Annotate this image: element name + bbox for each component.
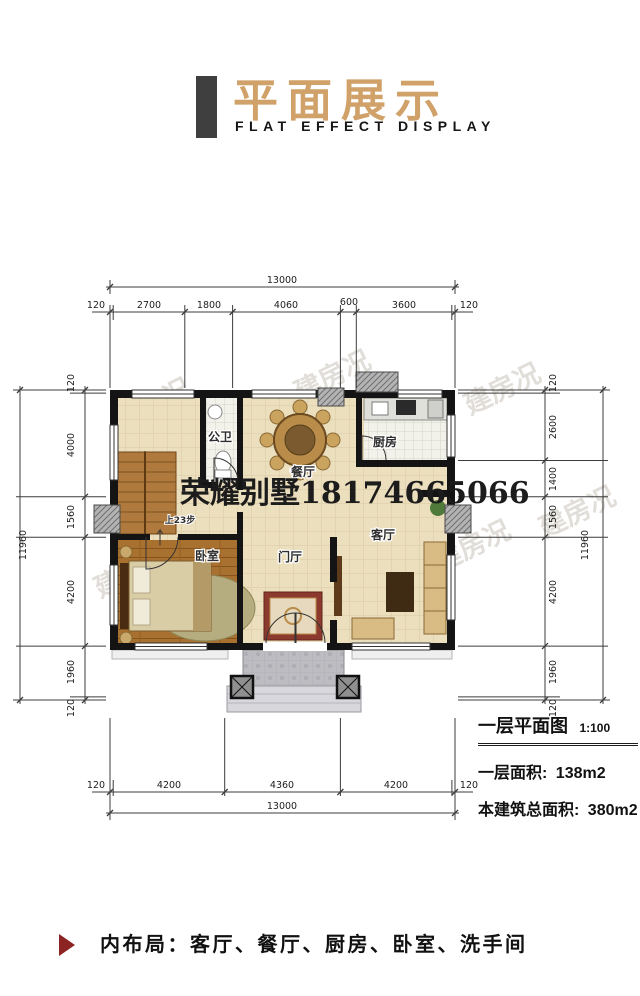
plan-title: 一层平面图 bbox=[478, 716, 568, 736]
dim-label: 1560 bbox=[66, 505, 77, 529]
footer-layout-text: 内布局：客厅、餐厅、厨房、卧室、洗手间 bbox=[100, 928, 528, 957]
plan-info-title-row: 一层平面图 1:100 bbox=[478, 712, 638, 746]
dim-label: 1960 bbox=[548, 660, 559, 684]
dim-label: 120 bbox=[66, 699, 77, 717]
floor-plan-area: 建房况 建房况 建房况 建房况 建房况 建房况 建房况 bbox=[0, 0, 640, 991]
dim-label: 1960 bbox=[66, 660, 77, 684]
total-area-label: 本建筑总面积: bbox=[478, 802, 579, 819]
total-area-row: 本建筑总面积: 380m2 bbox=[478, 796, 638, 820]
dim-left: 11960 120 4000 1560 4200 1960 120 bbox=[18, 374, 77, 717]
dim-top: 13000 120 2700 1800 4060 600 3600 120 bbox=[87, 275, 478, 311]
dim-label: 1560 bbox=[548, 505, 559, 529]
dim-label: 120 bbox=[548, 374, 559, 392]
dim-label: 4060 bbox=[274, 300, 298, 311]
dim-label: 4360 bbox=[270, 780, 294, 791]
dim-bottom-total: 13000 bbox=[267, 801, 297, 812]
dim-label: 4200 bbox=[66, 580, 77, 604]
room-label-kitchen: 厨房 bbox=[373, 434, 397, 449]
kitchen-counter bbox=[364, 398, 447, 420]
dim-label: 120 bbox=[87, 300, 105, 311]
floor-plan-drawing: 建房况 建房况 建房况 建房况 建房况 建房况 建房况 bbox=[0, 0, 640, 991]
floor-area-label: 一层面积: bbox=[478, 765, 547, 782]
stairs bbox=[114, 452, 176, 545]
dim-right-total: 11960 bbox=[580, 530, 591, 560]
plan-info-block: 一层平面图 1:100 一层面积: 138m2 本建筑总面积: 380m2 bbox=[478, 712, 638, 820]
dim-label: 2700 bbox=[137, 300, 161, 311]
dim-label: 120 bbox=[87, 780, 105, 791]
room-label-bathroom: 公卫 bbox=[208, 430, 232, 444]
triangle-marker-icon bbox=[59, 934, 75, 956]
dim-label: 120 bbox=[460, 300, 478, 311]
dim-label: 600 bbox=[340, 297, 358, 308]
dim-right: 11960 120 2600 1400 1560 4200 1960 120 bbox=[548, 374, 591, 717]
dim-label: 4200 bbox=[384, 780, 408, 791]
dim-label: 120 bbox=[66, 374, 77, 392]
dim-label: 1800 bbox=[197, 300, 221, 311]
dim-label: 3600 bbox=[392, 300, 416, 311]
floor-area-row: 一层面积: 138m2 bbox=[478, 759, 638, 783]
room-label-foyer: 门厅 bbox=[278, 549, 302, 564]
center-watermark: 荣耀别墅18174665066 bbox=[180, 476, 530, 511]
stairs-note: 上23步 bbox=[165, 514, 196, 526]
dim-label: 4200 bbox=[548, 580, 559, 604]
floor-area-value: 138m2 bbox=[556, 765, 606, 782]
room-label-bedroom: 卧室 bbox=[195, 548, 219, 563]
dim-label: 120 bbox=[460, 780, 478, 791]
page-footer: 内布局：客厅、餐厅、厨房、卧室、洗手间 bbox=[0, 922, 640, 968]
dim-label: 1400 bbox=[548, 467, 559, 491]
plan-scale: 1:100 bbox=[579, 721, 610, 735]
entry-opening bbox=[263, 642, 327, 651]
dim-bottom: 120 4200 4360 4200 120 13000 bbox=[87, 780, 478, 812]
total-area-value: 380m2 bbox=[588, 802, 638, 819]
dim-top-total: 13000 bbox=[267, 275, 297, 286]
foyer-rug bbox=[264, 592, 322, 640]
room-label-living: 客厅 bbox=[370, 527, 395, 542]
dim-label: 4000 bbox=[66, 433, 77, 457]
dim-left-total: 11960 bbox=[18, 530, 29, 560]
dim-label: 4200 bbox=[157, 780, 181, 791]
dim-label: 2600 bbox=[548, 415, 559, 439]
